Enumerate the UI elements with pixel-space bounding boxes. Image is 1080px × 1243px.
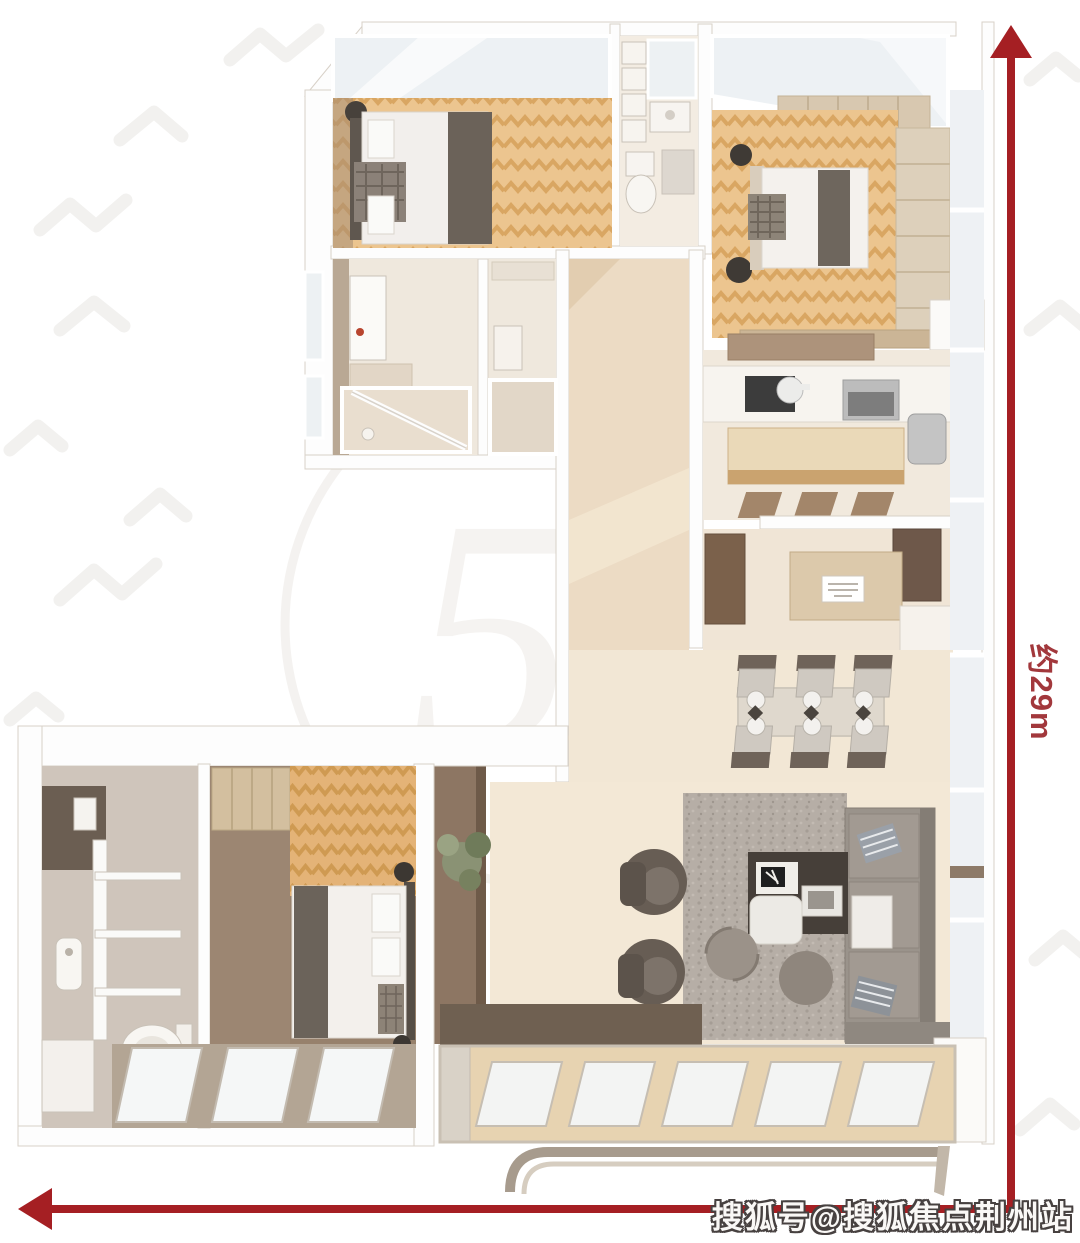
sohu-watermark: 搜狐号@搜狐焦点荆州站 bbox=[712, 1192, 1074, 1237]
vertical-dimension-arrow bbox=[990, 25, 1032, 1210]
bedroom-bottom-windows bbox=[112, 1044, 416, 1128]
kitchen-island bbox=[728, 428, 904, 518]
balcony bbox=[440, 1046, 955, 1196]
living-room bbox=[432, 764, 953, 1046]
floor-plan-canvas: 51 bbox=[0, 0, 1080, 1243]
mirror-cabinet bbox=[350, 276, 386, 360]
white-pouf bbox=[750, 896, 802, 944]
refrigerator bbox=[908, 414, 946, 464]
balcony-glass-panels bbox=[476, 1062, 934, 1126]
sideboard bbox=[790, 552, 902, 620]
arrow-up-icon bbox=[990, 25, 1032, 58]
bathroom-top bbox=[620, 36, 698, 246]
pantry bbox=[703, 529, 953, 664]
master-bedroom bbox=[712, 36, 984, 350]
floor-plan-svg: 51 bbox=[0, 0, 1080, 1243]
kitchen bbox=[703, 334, 954, 529]
round-pouf bbox=[779, 951, 833, 1005]
dining-area bbox=[569, 650, 953, 790]
vertical-dimension-label: 约29m bbox=[1021, 621, 1061, 763]
shower-tray bbox=[490, 380, 556, 454]
washbasin-left bbox=[494, 326, 522, 370]
bed-top-left bbox=[350, 112, 492, 244]
bed-bottom bbox=[292, 862, 415, 1053]
balcony-railing bbox=[510, 1146, 950, 1196]
tv-partition bbox=[432, 764, 491, 1044]
bathtub bbox=[342, 388, 470, 452]
washbasin-bottom bbox=[56, 938, 82, 990]
bathroom-left bbox=[305, 259, 556, 455]
media-console bbox=[440, 1004, 702, 1046]
arrow-left-icon bbox=[18, 1188, 52, 1230]
bedroom-top-left bbox=[333, 36, 612, 248]
toilet-top bbox=[626, 175, 656, 213]
